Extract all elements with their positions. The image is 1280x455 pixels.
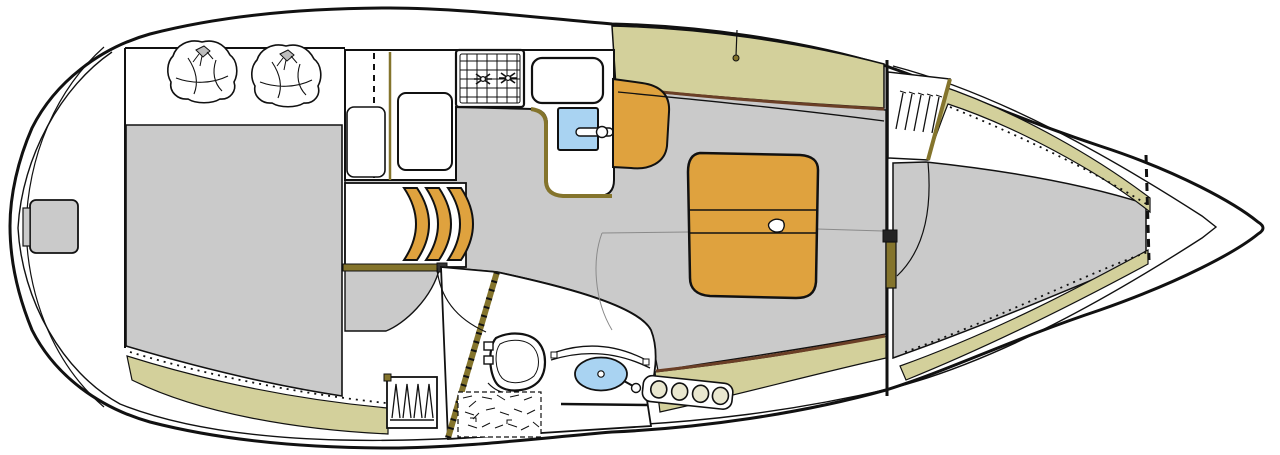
aft-berth	[126, 125, 342, 396]
pillow-right	[252, 45, 321, 107]
boat-floorplan	[0, 0, 1280, 455]
nav-locker-lid	[347, 107, 385, 177]
two-burner-stove	[456, 50, 524, 107]
shower-grate	[458, 392, 541, 437]
counter-lid	[398, 93, 452, 170]
pillow-left	[168, 41, 237, 103]
companionway-sill	[343, 264, 441, 271]
dinette-table	[688, 153, 818, 298]
cup-holder	[769, 219, 785, 232]
hanging-locker-head	[384, 374, 437, 428]
transom-step	[30, 200, 78, 253]
transom-step-hinge	[23, 208, 30, 246]
basin-drain	[598, 371, 604, 377]
vanity-drawer-line	[561, 404, 648, 405]
floorplan-svg	[0, 0, 1280, 455]
galley-faucet	[576, 127, 613, 138]
companionway	[343, 183, 473, 272]
icebox-lid	[532, 58, 603, 103]
